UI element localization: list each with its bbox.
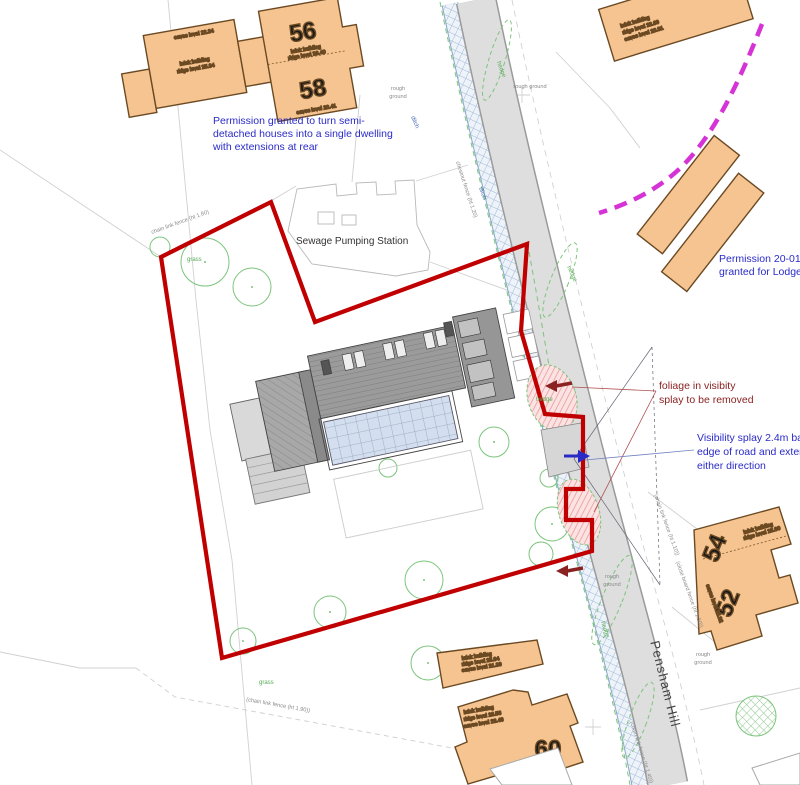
building-semi-detached: brick building ridge level 25.84 eaves l…: [116, 14, 277, 117]
outbuilding: brick building ridge level 25.94 eaves l…: [437, 640, 543, 688]
rough-ground-2: rough ground: [513, 84, 546, 90]
building-54-52: 54 52 brick building ridge level 28.80 e…: [694, 507, 798, 650]
grass-label-2: grass: [259, 680, 274, 686]
permission-semi-line3: with extensions at rear: [212, 141, 319, 153]
rough-ground-1a: rough: [391, 86, 405, 92]
grass-label-1: grass: [187, 257, 202, 263]
house-number-58: 58: [297, 74, 328, 105]
hedge-label-1: hedge: [565, 265, 578, 283]
patio-outline: [334, 450, 483, 538]
foliage-line1: foliage in visibity: [659, 380, 736, 392]
house-number-56: 56: [287, 17, 318, 48]
visibility-line1: Visibility splay 2.4m ba: [697, 432, 800, 444]
permission-lodge-line1: Permission 20-01732-O: [719, 253, 800, 265]
pumping-station-compound: [288, 180, 430, 276]
rough-ground-3b: ground: [603, 582, 620, 588]
building-56-58: 56 brick building ridge level 26.40 58 e…: [258, 0, 370, 122]
hedge-label-2: hedge: [536, 397, 553, 403]
permission-lodge-line2: granted for Lodge Cara: [719, 266, 800, 278]
permission-semi-line1: Permission granted to turn semi-: [213, 115, 365, 127]
main-building: [222, 301, 568, 556]
foliage-line2: splay to be removed: [659, 394, 754, 406]
annotation-foliage: foliage in visibity splay to be removed: [659, 380, 754, 406]
visibility-line2: edge of road and exten: [697, 446, 800, 458]
building-top-right: brick building ridge level 23.69 eaves l…: [599, 0, 753, 61]
site-plan: brick building ridge level 25.84 eaves l…: [0, 0, 800, 785]
annotation-permission-lodge: Permission 20-01732-O granted for Lodge …: [719, 253, 800, 278]
rough-ground-3a: rough: [605, 574, 619, 580]
rough-ground-4a: rough: [696, 652, 710, 658]
rough-ground-1b: ground: [389, 94, 406, 100]
permission-semi-line2: detached houses into a single dwelling: [213, 128, 393, 140]
pumping-station-label: Sewage Pumping Station: [296, 236, 408, 247]
annotation-permission-semi: Permission granted to turn semi- detache…: [212, 115, 393, 153]
annotation-visibility: Visibility splay 2.4m ba edge of road an…: [697, 432, 800, 472]
ditch-label-1: ditch: [409, 115, 419, 129]
fence-label-4: (chain link fence (ht 1.10)): [652, 494, 680, 557]
visibility-line3: either direction: [697, 460, 766, 472]
fence-label-1: chain link fence (ht 1.80): [151, 209, 210, 236]
fence-label-3: chestnut fence (ht 1.20): [454, 161, 478, 219]
rough-ground-4b: ground: [694, 660, 711, 666]
